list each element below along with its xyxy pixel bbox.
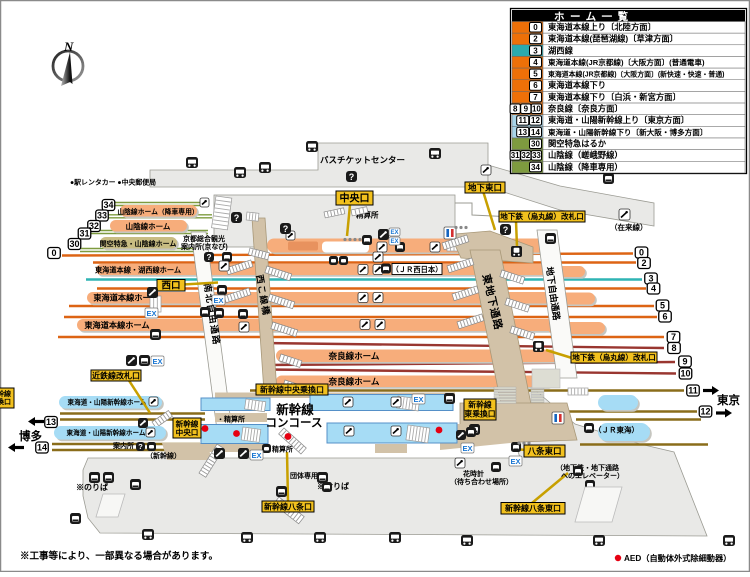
svg-text:奈良線ホーム: 奈良線ホーム [328, 351, 380, 361]
svg-text:（待ち合わせ場所）: （待ち合わせ場所） [450, 477, 513, 486]
svg-text:?: ? [349, 172, 355, 182]
svg-text:31: 31 [511, 151, 520, 160]
svg-text:案内所: 案内所 [113, 441, 134, 450]
svg-text:新幹線八条東口: 新幹線八条東口 [505, 503, 561, 513]
svg-text:10: 10 [680, 369, 690, 379]
svg-text:中央口: 中央口 [176, 427, 199, 437]
svg-text:10: 10 [532, 105, 541, 114]
svg-text:EX: EX [390, 230, 398, 236]
svg-text:奈良線ホーム: 奈良線ホーム [328, 376, 380, 386]
svg-text:?: ? [234, 213, 240, 223]
svg-text:EX: EX [462, 444, 472, 453]
svg-text:地下東口: 地下東口 [468, 183, 502, 193]
svg-text:幹線: 幹線 [0, 389, 11, 398]
svg-text:案内所(京なび): 案内所(京なび) [181, 242, 228, 251]
svg-text:コンコース: コンコース [266, 418, 323, 430]
svg-text:33: 33 [97, 211, 107, 221]
svg-text:（新幹線）: （新幹線） [146, 451, 181, 460]
svg-text:関空特急はるか: 関空特急はるか [548, 138, 607, 148]
svg-text:地下鉄（烏丸線）改札口: 地下鉄（烏丸線）改札口 [572, 352, 656, 362]
svg-text:（在来線）: （在来線） [610, 222, 648, 232]
svg-text:新幹線中央乗換口: 新幹線中央乗換口 [260, 384, 324, 394]
svg-text:?: ? [138, 442, 143, 451]
svg-text:新幹線: 新幹線 [468, 400, 492, 410]
svg-text:14: 14 [37, 443, 47, 453]
svg-text:EX: EX [510, 457, 520, 466]
svg-text:2: 2 [641, 258, 646, 268]
svg-text:N: N [63, 39, 74, 54]
svg-text:バスチケットセンター: バスチケットセンター [320, 155, 405, 165]
svg-text:?: ? [206, 253, 211, 262]
svg-text:※のりば: ※のりば [76, 482, 108, 492]
svg-text:?: ? [283, 224, 289, 234]
svg-text:団体専用: 団体専用 [290, 471, 318, 480]
svg-text:精算所: 精算所 [272, 445, 293, 454]
svg-text:11: 11 [688, 386, 698, 396]
svg-text:関空特急・山陰線ホーム: 関空特急・山陰線ホーム [100, 239, 177, 248]
svg-text:30: 30 [69, 239, 79, 249]
svg-text:8: 8 [671, 343, 676, 353]
svg-text:地下鉄（烏丸線）改札口: 地下鉄（烏丸線）改札口 [500, 211, 584, 221]
svg-text:東海道・山陽新幹線ホーム: 東海道・山陽新幹線ホーム [67, 428, 146, 437]
svg-text:奈良線〔奈良方面〕: 奈良線〔奈良方面〕 [547, 104, 623, 114]
svg-text:新幹線八条口: 新幹線八条口 [264, 501, 312, 511]
svg-text:2: 2 [533, 35, 538, 44]
svg-text:13: 13 [518, 128, 527, 137]
svg-text:0: 0 [639, 248, 644, 258]
svg-text:4: 4 [533, 58, 538, 67]
svg-text:●駅レンタカー ●中央郵便局: ●駅レンタカー ●中央郵便局 [70, 178, 156, 187]
svg-text:山陰線ホーム（降車専用）: 山陰線ホーム（降車専用） [117, 207, 198, 216]
svg-text:東海道本線(JR京都線)〔大阪方面〕(普通電車): 東海道本線(JR京都線)〔大阪方面〕(普通電車) [548, 57, 705, 67]
svg-text:博多: 博多 [19, 429, 42, 443]
svg-text:3: 3 [648, 274, 653, 284]
svg-text:東海道本線(琵琶湖線)〔草津方面〕: 東海道本線(琵琶湖線)〔草津方面〕 [547, 34, 678, 44]
svg-text:7: 7 [671, 332, 676, 342]
svg-text:31: 31 [79, 229, 89, 239]
svg-text:9: 9 [682, 357, 687, 367]
svg-text:東海道本線下り: 東海道本線下り [547, 80, 606, 90]
svg-text:EX: EX [251, 451, 261, 460]
svg-text:・精算所: ・精算所 [217, 415, 245, 424]
svg-text:（ＪＲ西日本）: （ＪＲ西日本） [391, 265, 442, 274]
svg-text:花時計: 花時計 [463, 469, 484, 478]
svg-text:7: 7 [533, 93, 538, 102]
svg-text:（地下鉄・地下通路: （地下鉄・地下通路 [556, 463, 620, 472]
svg-text:EX: EX [152, 357, 162, 366]
svg-text:（ＪＲ東海）: （ＪＲ東海） [594, 425, 639, 435]
svg-text:0: 0 [533, 23, 538, 32]
svg-text:9: 9 [524, 105, 529, 114]
svg-text:EX: EX [146, 309, 156, 318]
svg-text:5: 5 [533, 70, 538, 79]
svg-text:6: 6 [662, 312, 667, 322]
svg-text:12: 12 [700, 407, 710, 417]
svg-text:※工事等により、一部異なる場合があります。: ※工事等により、一部異なる場合があります。 [20, 550, 218, 562]
svg-text:5: 5 [660, 301, 665, 311]
svg-text:4: 4 [651, 284, 656, 294]
svg-text:EX: EX [413, 395, 423, 404]
svg-text:8: 8 [513, 105, 518, 114]
svg-text:30: 30 [531, 139, 540, 148]
svg-text:山陰線（降車専用）: 山陰線（降車専用） [548, 162, 623, 172]
svg-text:へのエレベーター）: へのエレベーター） [561, 471, 624, 480]
svg-text:東海道本線(JR京都線)〔大阪方面〕(新快速・快速・普通): 東海道本線(JR京都線)〔大阪方面〕(新快速・快速・普通) [548, 70, 724, 79]
svg-text:東海道・山陽新幹線上り〔東京方面〕: 東海道・山陽新幹線上り〔東京方面〕 [547, 115, 689, 125]
svg-text:換口: 換口 [0, 397, 11, 406]
svg-text:?: ? [503, 225, 509, 235]
svg-text:6: 6 [533, 81, 538, 90]
svg-text:中央口: 中央口 [340, 192, 370, 205]
svg-text:新幹線: 新幹線 [276, 402, 314, 417]
svg-text:山陰線ホーム: 山陰線ホーム [126, 221, 171, 231]
svg-text:33: 33 [532, 151, 541, 160]
svg-text:13: 13 [46, 417, 56, 427]
svg-text:32: 32 [521, 151, 530, 160]
svg-text:3: 3 [533, 46, 538, 55]
svg-text:12: 12 [531, 116, 540, 125]
svg-text:近鉄線改札口: 近鉄線改札口 [92, 370, 140, 380]
svg-text:34: 34 [103, 200, 113, 210]
svg-text:EX: EX [213, 296, 223, 305]
svg-text:東海道・山陽新幹線下り〔新大阪・博多方面〕: 東海道・山陽新幹線下り〔新大阪・博多方面〕 [548, 127, 707, 137]
svg-text:山陰線（嵯峨野線）: 山陰線（嵯峨野線） [548, 150, 623, 160]
svg-text:東海道本線上り〔北陸方面〕: 東海道本線上り〔北陸方面〕 [547, 22, 656, 32]
svg-text:東海道本線下り〔白浜・新宮方面〕: 東海道本線下り〔白浜・新宮方面〕 [547, 92, 681, 102]
svg-text:AED（自動体外式除細動器）: AED（自動体外式除細動器） [624, 553, 731, 563]
svg-text:西口: 西口 [161, 281, 180, 292]
svg-text:湖西線: 湖西線 [548, 45, 574, 55]
svg-text:東海道本線ホーム: 東海道本線ホーム [84, 320, 149, 330]
svg-text:東海道・山陽新幹線ホーム: 東海道・山陽新幹線ホーム [68, 398, 147, 407]
svg-text:EX: EX [390, 239, 398, 245]
svg-text:東京: 東京 [717, 393, 740, 407]
svg-text:八条東口: 八条東口 [526, 446, 561, 456]
svg-text:新幹線: 新幹線 [176, 419, 199, 429]
svg-text:14: 14 [531, 128, 540, 137]
svg-text:0: 0 [51, 248, 56, 258]
svg-text:11: 11 [518, 116, 527, 125]
svg-text:東乗換口: 東乗換口 [464, 409, 495, 419]
svg-text:34: 34 [531, 163, 540, 172]
svg-text:京都総合観光: 京都総合観光 [183, 234, 225, 243]
svg-text:ホーム一覧: ホーム一覧 [554, 10, 634, 23]
svg-text:東海道本線・湖西線ホーム: 東海道本線・湖西線ホーム [94, 266, 181, 275]
